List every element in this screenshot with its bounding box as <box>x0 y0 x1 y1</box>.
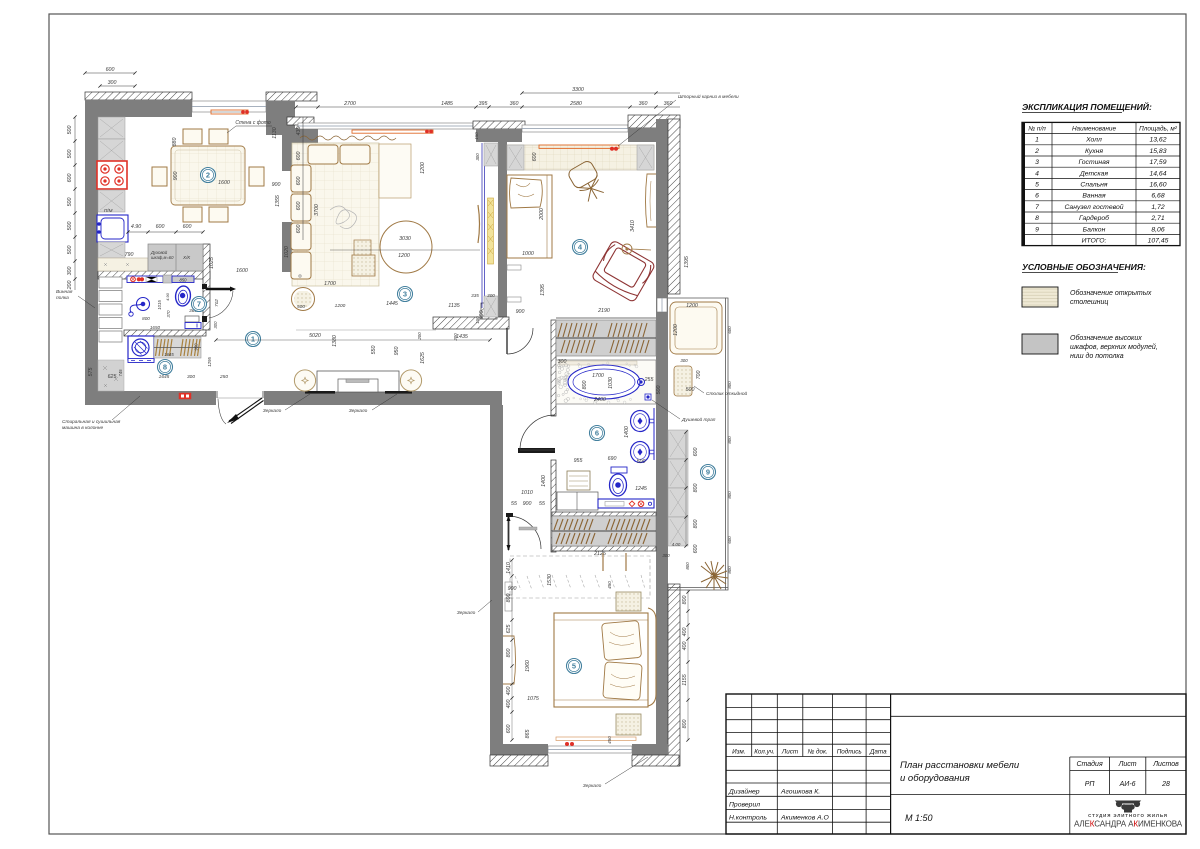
svg-text:1645: 1645 <box>164 352 174 357</box>
svg-text:9: 9 <box>1035 226 1039 233</box>
svg-text:Агошкова К.: Агошкова К. <box>780 789 820 796</box>
svg-text:800: 800 <box>727 566 732 574</box>
svg-text:2700: 2700 <box>343 101 356 107</box>
svg-text:столешниц: столешниц <box>1070 299 1108 306</box>
svg-text:2: 2 <box>1034 148 1039 155</box>
svg-text:200: 200 <box>453 333 458 342</box>
svg-text:800: 800 <box>506 594 512 603</box>
svg-text:Лист: Лист <box>781 749 798 756</box>
svg-text:Зеркало: Зеркало <box>349 408 368 414</box>
svg-text:450: 450 <box>607 581 612 589</box>
svg-text:шкафов, верхних модулей,: шкафов, верхних модулей, <box>1070 343 1158 351</box>
svg-text:Балкон: Балкон <box>1083 226 1106 233</box>
svg-text:Обозначение высоких: Обозначение высоких <box>1070 334 1142 342</box>
svg-text:3700: 3700 <box>314 204 320 216</box>
svg-text:ниш до потолка: ниш до потолка <box>1070 352 1124 360</box>
svg-text:600: 600 <box>296 202 302 211</box>
svg-text:Зеркало: Зеркало <box>583 783 602 789</box>
svg-text:№ док.: № док. <box>807 748 827 756</box>
svg-text:1600: 1600 <box>236 268 248 274</box>
svg-text:600: 600 <box>532 153 538 162</box>
svg-text:Листов: Листов <box>1152 761 1179 768</box>
svg-text:Гардероб: Гардероб <box>1079 214 1110 222</box>
svg-text:55: 55 <box>511 501 517 507</box>
svg-text:Стена с фото: Стена с фото <box>235 120 270 126</box>
svg-text:1400: 1400 <box>541 475 547 487</box>
svg-text:7: 7 <box>1035 204 1039 211</box>
svg-text:600: 600 <box>106 67 115 73</box>
svg-text:8: 8 <box>163 363 167 372</box>
svg-text:машина в колонне: машина в колонне <box>62 426 104 431</box>
svg-text:690: 690 <box>608 456 617 462</box>
svg-text:Душевой трап: Душевой трап <box>681 416 716 423</box>
svg-text:Спальня: Спальня <box>1080 181 1108 188</box>
svg-text:15,83: 15,83 <box>1149 148 1166 155</box>
svg-text:300: 300 <box>487 293 495 298</box>
svg-text:600: 600 <box>156 224 165 230</box>
svg-text:5: 5 <box>572 662 576 671</box>
svg-text:550: 550 <box>371 346 377 355</box>
svg-text:300: 300 <box>213 321 218 329</box>
svg-text:Зеркало: Зеркало <box>457 610 476 616</box>
svg-text:800: 800 <box>727 436 732 444</box>
svg-text:900: 900 <box>523 501 532 507</box>
svg-text:8,06: 8,06 <box>1151 226 1164 233</box>
svg-text:Холл: Холл <box>1085 137 1102 144</box>
svg-text:600: 600 <box>67 174 73 183</box>
svg-text:Дата: Дата <box>869 749 887 756</box>
svg-text:Столик откидной: Столик откидной <box>706 390 747 397</box>
svg-text:14,64: 14,64 <box>1149 170 1166 177</box>
svg-text:900: 900 <box>479 311 485 320</box>
svg-text:395: 395 <box>479 101 488 107</box>
svg-text:УСЛОВНЫЕ ОБОЗНАЧЕНИЯ:: УСЛОВНЫЕ ОБОЗНАЧЕНИЯ: <box>1022 262 1146 272</box>
svg-text:900: 900 <box>173 172 179 181</box>
svg-text:16,60: 16,60 <box>1149 181 1166 188</box>
svg-text:1960: 1960 <box>525 660 531 672</box>
svg-text:1700: 1700 <box>324 281 336 287</box>
svg-text:360: 360 <box>639 101 648 107</box>
svg-text:1135: 1135 <box>448 303 459 309</box>
svg-text:500: 500 <box>67 150 73 159</box>
svg-text:1445: 1445 <box>386 301 398 307</box>
svg-text:6: 6 <box>595 429 599 438</box>
svg-text:1025: 1025 <box>209 257 215 269</box>
svg-text:4.90: 4.90 <box>131 224 141 230</box>
svg-text:2580: 2580 <box>569 101 582 107</box>
svg-text:6,68: 6,68 <box>1151 193 1164 200</box>
svg-text:300: 300 <box>187 374 195 380</box>
svg-text:17,59: 17,59 <box>1149 159 1166 166</box>
svg-text:1010: 1010 <box>521 490 533 496</box>
svg-text:1200: 1200 <box>673 324 679 336</box>
svg-text:800: 800 <box>693 484 699 493</box>
svg-text:Площадь, м²: Площадь, м² <box>1139 124 1178 132</box>
svg-text:370: 370 <box>166 310 171 318</box>
svg-text:4: 4 <box>1035 170 1039 177</box>
svg-text:1700: 1700 <box>592 373 604 379</box>
svg-text:6: 6 <box>1035 193 1039 200</box>
svg-text:600: 600 <box>693 448 699 457</box>
svg-text:865: 865 <box>525 730 531 739</box>
svg-text:Дизайнер: Дизайнер <box>728 788 760 796</box>
svg-text:полка: полка <box>56 296 69 301</box>
svg-text:7: 7 <box>197 300 201 309</box>
svg-text:1000: 1000 <box>522 251 534 257</box>
svg-text:600: 600 <box>296 177 302 186</box>
svg-text:1650: 1650 <box>150 325 161 330</box>
svg-text:Ванная: Ванная <box>1082 193 1106 200</box>
svg-text:880: 880 <box>172 138 178 147</box>
svg-text:Детская: Детская <box>1079 170 1108 177</box>
svg-text:850: 850 <box>180 278 188 283</box>
svg-text:3: 3 <box>403 290 407 299</box>
svg-text:600: 600 <box>506 725 512 734</box>
svg-text:575: 575 <box>88 368 94 377</box>
svg-text:Шторный карниз в мебели: Шторный карниз в мебели <box>678 93 739 100</box>
svg-text:РП: РП <box>1085 781 1096 788</box>
svg-text:600: 600 <box>727 326 732 334</box>
svg-text:Гостиная: Гостиная <box>1078 159 1109 166</box>
svg-text:500: 500 <box>656 386 662 395</box>
svg-text:8: 8 <box>1035 215 1039 222</box>
svg-text:13,62: 13,62 <box>1149 137 1166 144</box>
svg-text:500: 500 <box>67 222 73 231</box>
svg-text:1015: 1015 <box>157 300 162 310</box>
svg-text:625: 625 <box>506 625 512 634</box>
svg-text:500: 500 <box>637 459 646 465</box>
svg-text:1485: 1485 <box>441 101 453 107</box>
svg-text:500: 500 <box>67 246 73 255</box>
svg-text:55: 55 <box>539 501 545 507</box>
svg-text:1: 1 <box>251 335 255 344</box>
svg-text:600: 600 <box>693 545 699 554</box>
svg-text:1200: 1200 <box>335 303 346 309</box>
svg-text:955: 955 <box>574 458 583 464</box>
svg-text:950: 950 <box>194 343 199 351</box>
svg-text:3: 3 <box>1035 159 1039 166</box>
svg-text:9: 9 <box>706 468 710 477</box>
svg-text:4.90: 4.90 <box>165 292 170 301</box>
svg-text:ЭКСПЛИКАЦИЯ ПОМЕЩЕНИЙ:: ЭКСПЛИКАЦИЯ ПОМЕЩЕНИЙ: <box>1022 101 1152 112</box>
svg-text:800: 800 <box>142 316 150 321</box>
svg-text:Акименков А.О: Акименков А.О <box>780 815 830 822</box>
svg-text:1395: 1395 <box>684 256 690 268</box>
svg-text:300: 300 <box>680 358 688 363</box>
svg-text:АЛЕКСАНДРА АКИМЕНКОВА: АЛЕКСАНДРА АКИМЕНКОВА <box>1074 820 1183 829</box>
svg-text:745: 745 <box>118 369 123 377</box>
svg-text:1295: 1295 <box>207 357 212 367</box>
svg-text:400: 400 <box>682 642 688 651</box>
svg-text:СТУДИЯ ЭЛИТНОГО ЖИЛЬЯ: СТУДИЯ ЭЛИТНОГО ЖИЛЬЯ <box>1088 813 1168 818</box>
svg-text:Х/К: Х/К <box>182 255 190 260</box>
svg-text:360: 360 <box>664 101 673 107</box>
svg-text:702: 702 <box>214 299 219 307</box>
svg-text:4.00: 4.00 <box>672 542 681 547</box>
svg-text:Кухня: Кухня <box>1085 148 1103 155</box>
svg-text:500: 500 <box>297 304 305 310</box>
svg-text:1200: 1200 <box>686 303 698 309</box>
svg-text:150: 150 <box>474 132 479 140</box>
svg-text:450: 450 <box>607 736 612 744</box>
svg-text:1600: 1600 <box>218 180 230 186</box>
svg-text:и оборудования: и оборудования <box>900 773 970 784</box>
svg-text:1,72: 1,72 <box>1151 204 1164 211</box>
svg-text:Зеркало: Зеркало <box>263 408 282 414</box>
svg-text:28: 28 <box>1161 781 1170 788</box>
svg-text:790: 790 <box>125 252 134 258</box>
svg-text:1400: 1400 <box>624 426 630 438</box>
svg-text:1155: 1155 <box>682 674 688 685</box>
svg-text:Н.контроль: Н.контроль <box>729 815 767 822</box>
svg-text:200: 200 <box>67 281 73 291</box>
svg-text:Проверил: Проверил <box>729 802 760 809</box>
svg-text:П/М: П/М <box>104 208 113 213</box>
svg-text:1245: 1245 <box>635 486 647 492</box>
svg-text:600: 600 <box>727 536 732 544</box>
svg-text:Кол.уч.: Кол.уч. <box>754 749 775 756</box>
svg-text:300: 300 <box>662 553 670 558</box>
svg-text:600: 600 <box>296 152 302 161</box>
svg-text:1380: 1380 <box>332 335 338 347</box>
svg-text:АИ-6: АИ-6 <box>1119 781 1136 788</box>
svg-text:1130: 1130 <box>272 127 278 138</box>
svg-text:1020: 1020 <box>284 246 290 258</box>
svg-text:2400: 2400 <box>593 397 606 403</box>
svg-text:600: 600 <box>183 224 192 230</box>
svg-text:1410: 1410 <box>506 562 512 574</box>
svg-text:2190: 2190 <box>597 308 610 314</box>
svg-text:400: 400 <box>682 628 688 637</box>
svg-text:800: 800 <box>685 562 690 570</box>
svg-text:Обозначение открытых: Обозначение открытых <box>1070 289 1152 297</box>
svg-text:250: 250 <box>219 374 228 380</box>
svg-text:800: 800 <box>582 381 588 390</box>
svg-text:625: 625 <box>108 374 117 380</box>
svg-text:800: 800 <box>682 596 688 605</box>
svg-text:107,45: 107,45 <box>1148 237 1169 244</box>
svg-text:1200: 1200 <box>398 253 410 259</box>
svg-text:800: 800 <box>727 381 732 389</box>
svg-text:500: 500 <box>67 126 73 135</box>
svg-text:200: 200 <box>417 332 422 341</box>
svg-text:900: 900 <box>272 182 281 188</box>
svg-text:300: 300 <box>67 267 73 276</box>
svg-text:3030: 3030 <box>399 236 411 242</box>
svg-text:1075: 1075 <box>527 696 539 702</box>
svg-text:900: 900 <box>516 309 525 315</box>
svg-text:Лист: Лист <box>1118 761 1137 768</box>
svg-text:360: 360 <box>510 101 519 107</box>
svg-text:шкаф,м=60: шкаф,м=60 <box>151 255 174 260</box>
svg-text:Санузел гостевой: Санузел гостевой <box>1064 203 1123 211</box>
svg-text:700: 700 <box>696 371 702 380</box>
svg-text:800: 800 <box>682 720 688 729</box>
svg-text:500: 500 <box>67 198 73 207</box>
svg-text:1: 1 <box>1035 137 1039 144</box>
svg-text:300: 300 <box>558 359 567 365</box>
svg-text:950: 950 <box>394 347 400 356</box>
svg-text:Подпись: Подпись <box>837 748 862 756</box>
svg-text:600: 600 <box>296 225 302 234</box>
svg-text:3410: 3410 <box>630 220 636 232</box>
svg-text:800: 800 <box>506 649 512 658</box>
svg-text:3300: 3300 <box>572 87 584 93</box>
svg-text:300: 300 <box>475 153 480 161</box>
svg-text:1030: 1030 <box>608 377 614 389</box>
svg-text:ИТОГО:: ИТОГО: <box>1082 237 1107 244</box>
svg-text:5020: 5020 <box>309 333 321 339</box>
svg-text:800: 800 <box>693 520 699 529</box>
svg-text:255: 255 <box>644 377 654 383</box>
svg-text:№ п/п: № п/п <box>1028 125 1046 132</box>
svg-text:2: 2 <box>206 171 210 180</box>
svg-text:М 1:50: М 1:50 <box>905 813 933 823</box>
svg-text:Стадия: Стадия <box>1076 760 1102 768</box>
svg-text:400: 400 <box>506 687 512 696</box>
svg-text:500: 500 <box>686 387 695 393</box>
svg-text:1355: 1355 <box>275 195 281 207</box>
svg-text:2125: 2125 <box>593 551 606 557</box>
svg-text:400: 400 <box>506 700 512 709</box>
svg-text:1530: 1530 <box>547 574 553 586</box>
svg-text:1395: 1395 <box>540 284 546 296</box>
svg-text:335: 335 <box>471 293 479 298</box>
svg-text:430: 430 <box>296 127 302 136</box>
svg-text:Наименование: Наименование <box>1072 125 1117 132</box>
svg-text:План расстановки мебели: План расстановки мебели <box>900 760 1020 771</box>
svg-text:1625: 1625 <box>420 352 426 364</box>
svg-text:2000: 2000 <box>539 208 545 221</box>
svg-text:2,71: 2,71 <box>1150 215 1164 222</box>
svg-text:1200: 1200 <box>420 162 426 174</box>
svg-text:300: 300 <box>108 80 117 86</box>
svg-text:5: 5 <box>1035 181 1039 188</box>
svg-text:800: 800 <box>727 491 732 499</box>
svg-text:Изм.: Изм. <box>732 749 745 756</box>
